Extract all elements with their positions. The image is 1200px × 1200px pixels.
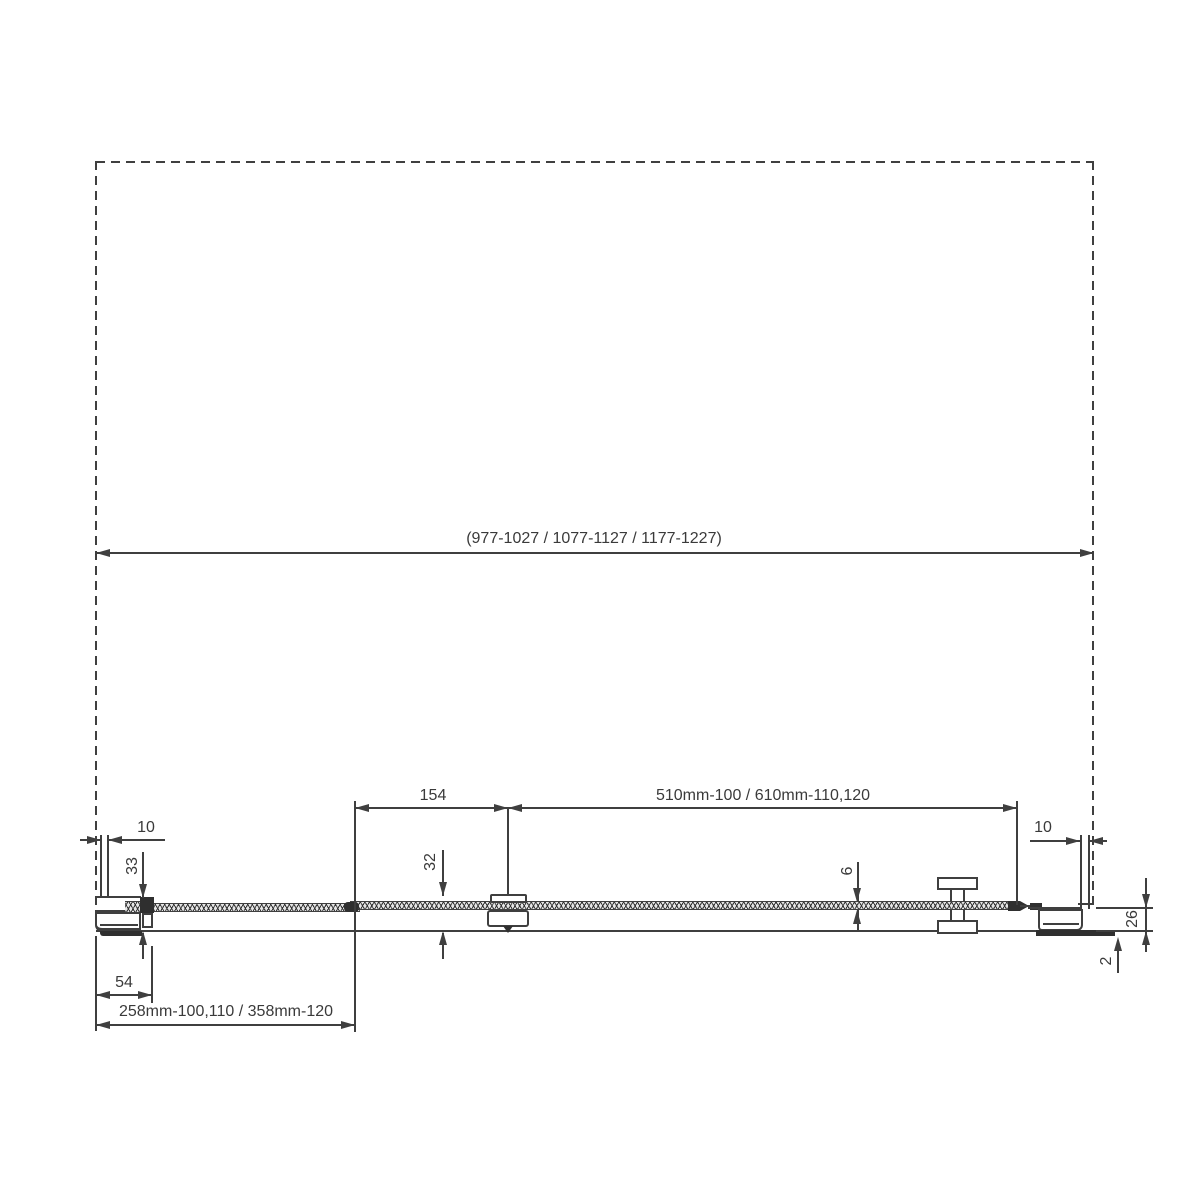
outline-left-dashed-line [95, 161, 97, 906]
right-profile-step-line [1078, 903, 1094, 905]
dim-26-arrow-down [1142, 894, 1150, 908]
left-glass-holder-hatch [125, 901, 141, 913]
outline-right-dashed-line [1092, 161, 1094, 908]
dim-right-gap-arrow-left [1089, 837, 1103, 845]
dim-154-arrow-left [355, 804, 369, 812]
left-profile-foot [95, 912, 141, 932]
dim-overall-arrow-right [1080, 549, 1094, 557]
dim-overall-arrow-left [96, 549, 110, 557]
dim-154-arrow-right [494, 804, 508, 812]
dim-6-arrow-up [853, 910, 861, 924]
left-wall-profile-upright-inner [107, 835, 109, 898]
clamp-bottom-body [487, 910, 529, 927]
dim-2-arrow-up [1114, 937, 1122, 951]
clamp-bottom-nib [503, 926, 513, 933]
ext-line-left-edge [95, 936, 97, 1031]
ext-line-door-end [1016, 801, 1018, 905]
dim-overall-width-label: (977-1027 / 1077-1127 / 1177-1227) [466, 531, 722, 547]
end-clip-block [1008, 901, 1020, 911]
dim-26-label: 26 [1125, 910, 1141, 928]
sliding-door-glass-panel [350, 901, 1008, 910]
dim-left-gap-arrow-right [87, 836, 101, 844]
clamp-top-plate [490, 894, 527, 903]
dim-54-label: 54 [115, 975, 133, 991]
dim-54-arrow-right [138, 991, 152, 999]
left-glass-clamp-lower [142, 913, 153, 928]
dim-32-label: 32 [423, 853, 439, 871]
right-wall-profile-upright-outer [1088, 835, 1090, 909]
fixed-glass-panel [154, 903, 360, 912]
panel-overlap-connector [344, 902, 359, 912]
dim-fixed-panel-width-label: 258mm-100,110 / 358mm-120 [119, 1004, 333, 1020]
dim-258-line [96, 1024, 355, 1026]
left-wall-profile-upright-outer [100, 835, 102, 898]
dim-right-gap-arrow-right [1066, 837, 1080, 845]
right-wall-profile-upright-inner [1080, 835, 1082, 909]
dim-32-arrow-down [439, 882, 447, 896]
dim-33-arrow-down [139, 884, 147, 898]
right-profile-foot [1038, 909, 1083, 931]
dim-33-arrow-up [139, 931, 147, 945]
dim-left-gap-label: 10 [137, 820, 155, 836]
dim-6-label: 6 [840, 867, 856, 876]
dim-door-panel-width-label: 510mm-100 / 610mm-110,120 [656, 788, 870, 804]
dim-510-arrow-right [1003, 804, 1017, 812]
ibeam-top-flange [937, 877, 978, 890]
dim-right-gap-label: 10 [1034, 820, 1052, 836]
dim-258-arrow-left [96, 1021, 110, 1029]
dim-2-label: 2 [1099, 957, 1115, 966]
dim-overall-line [96, 552, 1094, 554]
dim-26-arrow-up [1142, 931, 1150, 945]
dim-154-510-line [355, 807, 1017, 809]
dim-54-arrow-left [96, 991, 110, 999]
dim-510-arrow-left [508, 804, 522, 812]
left-profile-foot-inner-line [100, 924, 138, 926]
right-profile-foot-inner-line [1043, 923, 1079, 925]
ibeam-bottom-flange [937, 920, 978, 934]
dim-left-gap-arrow-left [108, 836, 122, 844]
shower-door-technical-drawing: (977-1027 / 1077-1127 / 1177-1227) 10 33 [0, 0, 1200, 1200]
outline-top-dashed-line [96, 161, 1094, 163]
ext-line-panel-joint [354, 801, 356, 1032]
dim-33-label: 33 [125, 857, 141, 875]
left-profile-cap-line [95, 896, 141, 898]
left-glass-clamp-block [140, 897, 154, 913]
dim-6-arrow-down [853, 888, 861, 902]
clamp-centerline [507, 808, 509, 896]
dim-26-line-mid [1145, 908, 1147, 931]
dim-32-arrow-up [439, 931, 447, 945]
dim-154-label: 154 [420, 788, 447, 804]
left-profile-foot-pad [100, 931, 142, 936]
dim-258-arrow-right [341, 1021, 355, 1029]
